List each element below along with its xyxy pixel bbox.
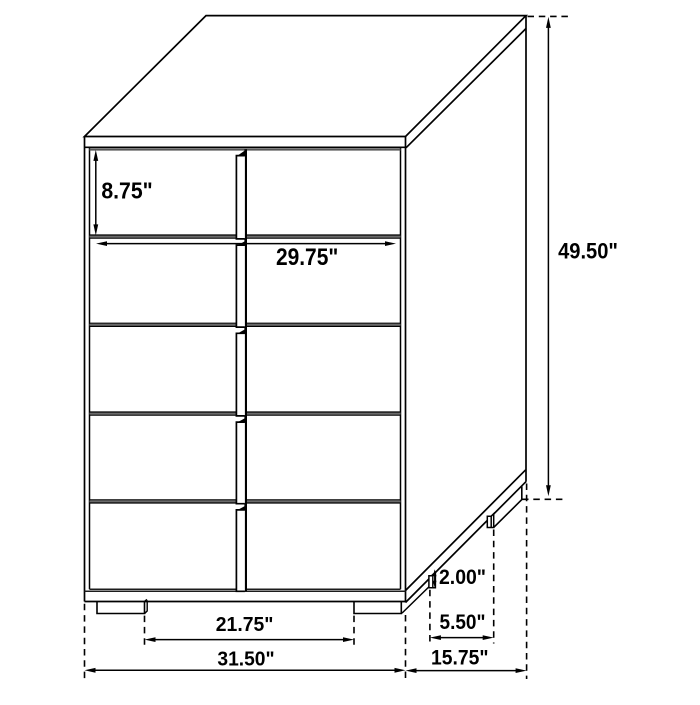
svg-text:2.00": 2.00" (439, 566, 486, 589)
svg-text:21.75": 21.75" (216, 614, 274, 637)
svg-text:8.75": 8.75" (101, 177, 152, 203)
svg-text:5.50": 5.50" (439, 611, 485, 634)
svg-text:29.75": 29.75" (276, 243, 338, 271)
svg-text:15.75": 15.75" (431, 647, 489, 670)
svg-text:49.50": 49.50" (558, 238, 618, 263)
svg-text:31.50": 31.50" (217, 648, 274, 671)
